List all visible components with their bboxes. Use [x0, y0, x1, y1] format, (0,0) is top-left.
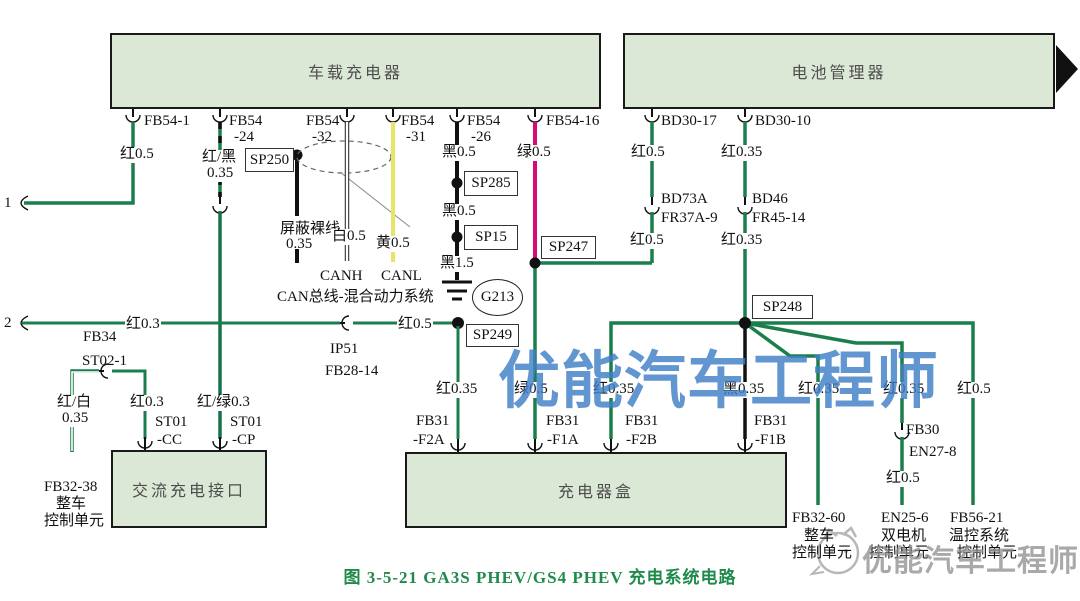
wire-label-red035-bd-b: 红0.35: [720, 233, 763, 249]
wire-label-redblack: 红/黑: [201, 150, 237, 166]
box-onboard-charger: 车载充电器: [110, 33, 601, 109]
pin-fr37a-9: FR37A-9: [661, 211, 718, 227]
pin-fb54-31: FB54: [401, 114, 434, 130]
pin-bd30-17: BD30-17: [661, 114, 717, 130]
box-charger-box-title: 充电器盒: [558, 478, 634, 502]
wire-label-red03-b: 红0.3: [129, 395, 165, 411]
pin-fb31-f2b-num: -F2B: [626, 433, 657, 449]
label-vcu-line1: 整车: [56, 497, 86, 513]
box-battery-manager: 电池管理器: [623, 33, 1055, 109]
pin-fb54-16: FB54-16: [546, 114, 599, 130]
pin-fb28-14: FB28-14: [325, 364, 378, 380]
wire-label-black15: 黑1.5: [439, 256, 475, 272]
pin-fr45-14: FR45-14: [752, 211, 805, 227]
ground-g213: G213: [472, 279, 523, 316]
label-m1-line1: 整车: [804, 529, 834, 545]
shield-ellipse: [297, 141, 391, 173]
wire-label-redgreen: 红/绿0.3: [196, 395, 251, 411]
wire-label-white05: 白0.5: [331, 229, 367, 245]
wiring-diagram-page: 车载充电器 电池管理器 交流充电接口 充电器盒 SP250 SP285 SP15…: [0, 0, 1080, 601]
wire-label-redwhite-gauge: 0.35: [61, 411, 89, 427]
pin-st01-cp: ST01: [230, 415, 263, 431]
wire-label-red05-en: 红0.5: [885, 471, 921, 487]
wire-label-red03-a: 红0.3: [125, 317, 161, 333]
pin-fb54-26: FB54: [467, 114, 500, 130]
pin-st01-cc: ST01: [155, 415, 188, 431]
box-onboard-charger-title: 车载充电器: [308, 59, 403, 83]
wire-label-black05-a: 黑0.5: [441, 145, 477, 161]
label-fb34: FB34: [83, 330, 116, 346]
page-continue-arrow-icon: [1056, 45, 1078, 93]
pin-fb54-24-num: -24: [234, 130, 254, 146]
box-ac-charge-port: 交流充电接口: [111, 450, 267, 528]
splice-sp285: SP285: [464, 171, 518, 196]
pin-fb31-f1b-num: -F1B: [755, 433, 786, 449]
pin-fb54-1: FB54-1: [144, 114, 190, 130]
edge-connector-1: 1: [4, 196, 12, 212]
label-m1-line2: 控制单元: [792, 546, 852, 562]
pin-fb31-f2a: FB31: [416, 414, 449, 430]
box-charger-box: 充电器盒: [405, 452, 787, 528]
edge-connector-2: 2: [4, 316, 12, 332]
pin-fb54-32: FB54: [306, 114, 339, 130]
label-can-bus: CAN总线-混合动力系统: [277, 290, 434, 306]
label-canl: CANL: [381, 269, 422, 285]
wire-label-red05-bd-a: 红0.5: [630, 145, 666, 161]
pin-fb32-60: FB32-60: [792, 511, 845, 527]
pin-ip51: IP51: [330, 342, 358, 358]
splice-sp15: SP15: [464, 225, 518, 250]
wire-label-green05-a: 绿0.5: [516, 145, 552, 161]
pin-st01-cp-num: -CP: [232, 433, 255, 449]
wire-label-shield-gauge: 0.35: [286, 237, 312, 253]
wire-label-black05-b: 黑0.5: [441, 204, 477, 220]
label-vcu-line2: 控制单元: [44, 514, 104, 530]
pin-fb32-38: FB32-38: [44, 480, 97, 496]
pin-fb31-f2a-num: -F2A: [413, 433, 445, 449]
splice-sp248: SP248: [752, 295, 813, 319]
wire-label-red035-f2a: 红0.35: [435, 382, 478, 398]
pin-en27-8: EN27-8: [909, 445, 957, 461]
box-ac-charge-port-title: 交流充电接口: [132, 477, 246, 501]
pin-fb54-24: FB54: [229, 114, 262, 130]
box-battery-manager-title: 电池管理器: [791, 59, 886, 83]
label-canh: CANH: [320, 269, 363, 285]
pin-en25-6: EN25-6: [881, 511, 929, 527]
pin-bd46: BD46: [752, 192, 788, 208]
pin-fb54-31-num: -31: [406, 130, 426, 146]
pin-bd30-10: BD30-10: [755, 114, 811, 130]
splice-sp247: SP247: [541, 236, 596, 259]
wire-label-red035-bd-a: 红0.35: [720, 145, 763, 161]
wire-label-yellow05: 黄0.5: [375, 236, 411, 252]
wire-label-red05-g3: 红0.5: [956, 382, 992, 398]
pin-fb56-21: FB56-21: [950, 511, 1003, 527]
wire-label-red05-fb54-1: 红0.5: [119, 147, 155, 163]
splice-sp250: SP250: [245, 148, 294, 172]
pin-st01-cc-num: -CC: [157, 433, 182, 449]
pin-bd73a: BD73A: [661, 192, 708, 208]
wire-fb54-1: [21, 122, 133, 210]
pin-st02-1: ST02-1: [82, 354, 127, 370]
wire-label-redblack-gauge: 0.35: [206, 166, 234, 182]
pin-fb30: FB30: [906, 423, 939, 439]
figure-caption: 图 3-5-21 GA3S PHEV/GS4 PHEV 充电系统电路: [0, 563, 1080, 588]
pin-fb31-f1a-num: -F1A: [547, 433, 579, 449]
watermark-main: 优能汽车工程师: [498, 330, 939, 420]
wire-label-red05-mid: 红0.5: [397, 317, 433, 333]
pin-fb54-32-num: -32: [312, 130, 332, 146]
wire-label-red05-bd-b: 红0.5: [629, 233, 665, 249]
wire-label-redwhite: 红/白: [56, 395, 92, 411]
